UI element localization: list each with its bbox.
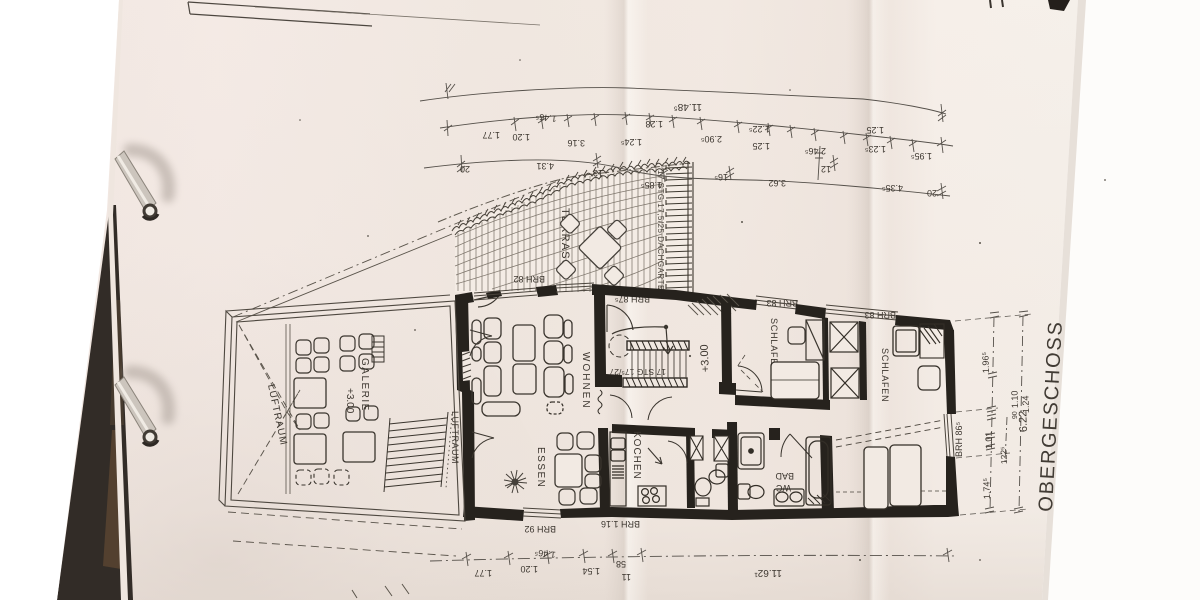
svg-text:11.62¹: 11.62¹ xyxy=(754,567,782,578)
svg-text:20: 20 xyxy=(460,164,470,174)
svg-text:1.54: 1.54 xyxy=(582,566,600,576)
svg-text:4.35⁵: 4.35⁵ xyxy=(881,183,903,193)
svg-text:16⁵: 16⁵ xyxy=(714,172,728,182)
svg-text:122⁵: 122⁵ xyxy=(998,446,1009,464)
svg-text:BRH 92: BRH 92 xyxy=(524,524,556,534)
svg-text:1.22⁵: 1.22⁵ xyxy=(748,124,770,134)
svg-text:3.16: 3.16 xyxy=(567,138,585,148)
svg-text:1.24: 1.24 xyxy=(1020,395,1031,413)
svg-text:20: 20 xyxy=(927,188,937,198)
svg-text:1.24⁵: 1.24⁵ xyxy=(620,137,642,147)
svg-text:+3.00: +3.00 xyxy=(699,344,712,372)
svg-text:GALERIE: GALERIE xyxy=(359,358,370,412)
svg-text:12: 12 xyxy=(821,164,831,174)
svg-text:3.62: 3.62 xyxy=(768,178,786,188)
svg-text:1.23⁵: 1.23⁵ xyxy=(864,144,886,154)
svg-text:1.77: 1.77 xyxy=(474,568,492,578)
svg-text:KOCHEN: KOCHEN xyxy=(631,431,642,480)
svg-text:2.90⁵: 2.90⁵ xyxy=(700,134,722,144)
svg-text:WOHNEN: WOHNEN xyxy=(580,352,591,410)
svg-text:1.25: 1.25 xyxy=(752,141,770,151)
svg-text:13: 13 xyxy=(593,168,603,178)
svg-text:1.74⁵: 1.74⁵ xyxy=(981,477,992,499)
svg-text:1.20: 1.20 xyxy=(512,132,530,142)
svg-text:1.85⁵: 1.85⁵ xyxy=(640,180,662,190)
svg-text:BRH 82: BRH 82 xyxy=(513,274,545,284)
svg-text:2.46⁵: 2.46⁵ xyxy=(804,146,826,156)
svg-text:1.20: 1.20 xyxy=(520,564,538,574)
svg-text:BAD: BAD xyxy=(775,471,794,481)
svg-text:11: 11 xyxy=(622,572,631,582)
svg-text:BRH 1.16: BRH 1.16 xyxy=(601,519,640,529)
svg-text:11.48⁵: 11.48⁵ xyxy=(674,101,702,112)
svg-text:1.95⁵: 1.95⁵ xyxy=(910,151,932,161)
svg-text:1.01: 1.01 xyxy=(983,431,994,449)
svg-text:BRH 86⁵: BRH 86⁵ xyxy=(954,421,964,457)
svg-text:1.77: 1.77 xyxy=(482,130,500,140)
svg-text:4.31: 4.31 xyxy=(536,161,554,171)
svg-text:58: 58 xyxy=(616,559,626,569)
svg-text:SCHLAFEN: SCHLAFEN xyxy=(880,348,890,402)
svg-text:LUFTRAUM: LUFTRAUM xyxy=(450,411,460,464)
svg-text:1.25: 1.25 xyxy=(866,125,884,135)
svg-text:17 STG 17⁵/27: 17 STG 17⁵/27 xyxy=(609,367,666,377)
svg-text:6.22: 6.22 xyxy=(1017,410,1030,432)
svg-text:1.10: 1.10 xyxy=(1009,390,1020,408)
svg-text:1.28: 1.28 xyxy=(645,119,663,129)
svg-text:ESSEN: ESSEN xyxy=(535,447,546,488)
svg-text:1.96⁵: 1.96⁵ xyxy=(980,351,991,373)
